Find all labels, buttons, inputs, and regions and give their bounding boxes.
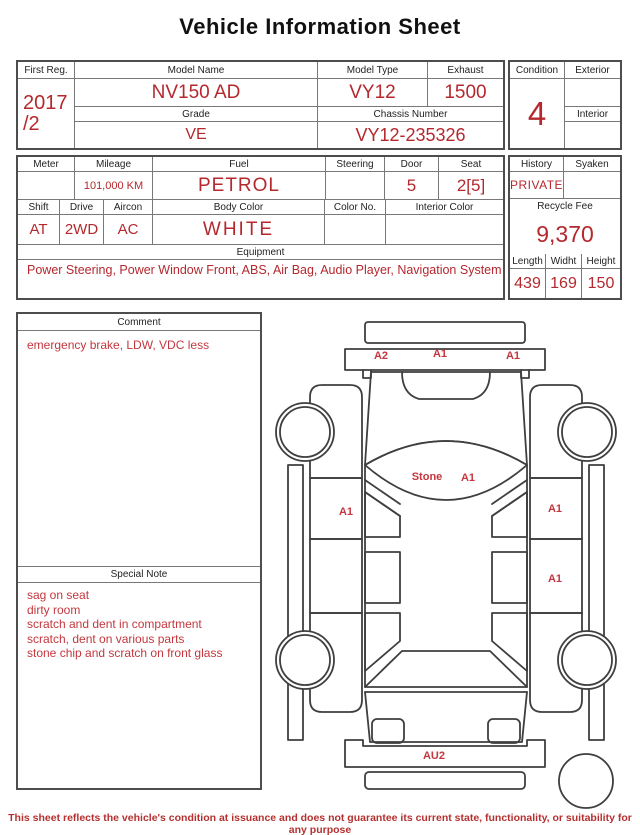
- model-name-value: NV150 AD: [75, 79, 318, 107]
- history-value: PRIVATE: [510, 172, 564, 199]
- grade-label: Grade: [75, 107, 318, 122]
- damage-mark-rear-bumper: AU2: [423, 750, 445, 762]
- mileage-value: 101,000 KM: [75, 172, 153, 200]
- damage-mark-front-bumper-center: A1: [433, 348, 447, 360]
- damage-mark-right-rear-door: A1: [548, 573, 562, 585]
- exterior-value: [565, 79, 620, 107]
- comment-text: emergency brake, LDW, VDC less: [18, 331, 260, 566]
- special-note-line: sag on seat: [27, 588, 251, 603]
- mileage-label: Mileage: [75, 157, 153, 172]
- damage-mark-front-bumper-right: A1: [506, 350, 520, 362]
- special-note-line: scratch and dent in compartment: [27, 617, 251, 632]
- first-reg-month: /2: [23, 114, 40, 135]
- interior-color-label: Interior Color: [386, 200, 503, 215]
- syaken-label: Syaken: [564, 157, 620, 172]
- model-name-label: Model Name: [75, 62, 318, 79]
- car-damage-diagram: A2 A1 A1 Stone A1 A1 A1 A1 AU2: [270, 315, 640, 810]
- disclaimer-text: This sheet reflects the vehicle's condit…: [0, 812, 640, 835]
- drive-label: Drive: [60, 200, 104, 215]
- body-color-label: Body Color: [153, 200, 325, 215]
- special-note-line: dirty room: [27, 603, 251, 618]
- damage-mark-left-door: A1: [339, 506, 353, 518]
- special-note-text: sag on seat dirty room scratch and dent …: [18, 583, 260, 788]
- interior-label: Interior: [565, 107, 620, 122]
- chassis-number-value: VY12-235326: [318, 122, 503, 148]
- door-value: 5: [385, 172, 439, 200]
- door-label: Door: [385, 157, 439, 172]
- height-value: 150: [582, 269, 620, 298]
- exhaust-value: 1500: [428, 79, 503, 107]
- height-label: Height: [582, 254, 620, 269]
- width-value: 169: [546, 269, 582, 298]
- seat-value: 2[5]: [439, 172, 503, 200]
- damage-mark-right-front-door: A1: [548, 503, 562, 515]
- grade-value: VE: [75, 122, 318, 148]
- first-reg-label: First Reg.: [18, 62, 75, 79]
- width-label: Widht: [546, 254, 582, 269]
- condition-label: Condition: [510, 62, 565, 79]
- recycle-fee-value: 9,370: [510, 214, 620, 254]
- first-reg-value: 2017 /2: [18, 79, 75, 148]
- comment-box: Comment emergency brake, LDW, VDC less S…: [16, 312, 262, 790]
- chassis-number-label: Chassis Number: [318, 107, 503, 122]
- meter-value: [18, 172, 75, 200]
- exterior-label: Exterior: [565, 62, 620, 79]
- length-label: Length: [510, 254, 546, 269]
- aircon-value: AC: [104, 215, 153, 245]
- fuel-value: PETROL: [153, 172, 326, 200]
- steering-label: Steering: [326, 157, 385, 172]
- special-note-line: stone chip and scratch on front glass: [27, 646, 251, 661]
- fuel-label: Fuel: [153, 157, 326, 172]
- shift-label: Shift: [18, 200, 60, 215]
- history-label: History: [510, 157, 564, 172]
- exhaust-label: Exhaust: [428, 62, 503, 79]
- equipment-label: Equipment: [18, 245, 503, 260]
- page-title: Vehicle Information Sheet: [0, 14, 640, 40]
- car-outline-drawing: [270, 315, 640, 810]
- model-type-label: Model Type: [318, 62, 428, 79]
- registration-table: First Reg. Model Name Model Type Exhaust…: [16, 60, 505, 150]
- color-no-value: [325, 215, 386, 245]
- wheel-icons: [276, 403, 616, 808]
- syaken-value: [564, 172, 620, 199]
- special-note-line: scratch, dent on various parts: [27, 632, 251, 647]
- interior-color-value: [386, 215, 503, 245]
- history-fee-table: History Syaken PRIVATE Recycle Fee 9,370…: [508, 155, 622, 300]
- seat-label: Seat: [439, 157, 503, 172]
- aircon-label: Aircon: [104, 200, 153, 215]
- interior-value: [565, 122, 620, 148]
- condition-table: Condition Exterior 4 Interior: [508, 60, 622, 150]
- condition-value: 4: [510, 79, 565, 148]
- specs-table: Meter Mileage Fuel Steering Door Seat 10…: [16, 155, 505, 300]
- body-color-value: WHITE: [153, 215, 325, 245]
- damage-mark-front-bumper-left: A2: [374, 350, 388, 362]
- steering-value: [326, 172, 385, 200]
- meter-label: Meter: [18, 157, 75, 172]
- damage-mark-windshield-stone: Stone: [412, 471, 443, 483]
- special-note-label: Special Note: [18, 566, 260, 583]
- vehicle-information-sheet: Vehicle Information Sheet First Reg. Mod…: [0, 0, 640, 835]
- damage-mark-windshield: A1: [461, 472, 475, 484]
- model-type-value: VY12: [318, 79, 428, 107]
- first-reg-year: 2017: [23, 93, 68, 114]
- drive-value: 2WD: [60, 215, 104, 245]
- recycle-fee-label: Recycle Fee: [510, 199, 620, 214]
- length-value: 439: [510, 269, 546, 298]
- shift-value: AT: [18, 215, 60, 245]
- color-no-label: Color No.: [325, 200, 386, 215]
- comment-label: Comment: [18, 314, 260, 331]
- equipment-value: Power Steering, Power Window Front, ABS,…: [18, 260, 503, 298]
